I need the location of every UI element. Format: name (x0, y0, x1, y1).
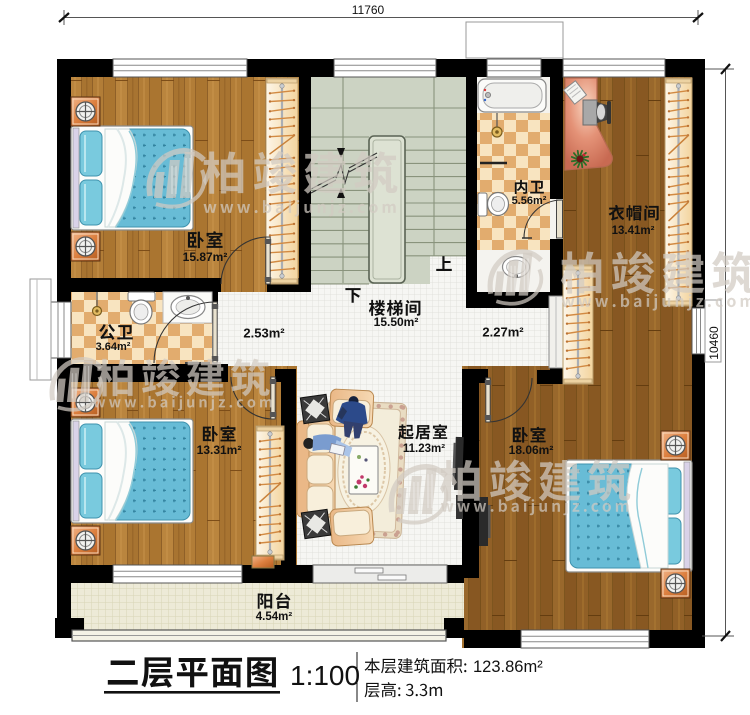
svg-text:15.50m²: 15.50m² (374, 315, 419, 329)
svg-text:13.31m²: 13.31m² (197, 443, 242, 457)
svg-text:11760: 11760 (352, 3, 385, 17)
svg-text:123.86m²: 123.86m² (473, 658, 543, 676)
svg-text:2.27m²: 2.27m² (482, 325, 524, 340)
svg-text:11.23m²: 11.23m² (403, 443, 445, 455)
svg-text:4.54m²: 4.54m² (256, 611, 293, 623)
svg-text:5.56m²: 5.56m² (512, 195, 547, 207)
svg-text:3.64m²: 3.64m² (96, 341, 131, 353)
svg-text:18.06m²: 18.06m² (509, 443, 554, 457)
svg-text:2.53m²: 2.53m² (243, 326, 285, 341)
svg-text:15.87m²: 15.87m² (183, 250, 228, 264)
svg-text:13.41m²: 13.41m² (612, 225, 655, 237)
svg-text:10460: 10460 (707, 326, 721, 360)
svg-text:1:100: 1:100 (290, 660, 360, 691)
